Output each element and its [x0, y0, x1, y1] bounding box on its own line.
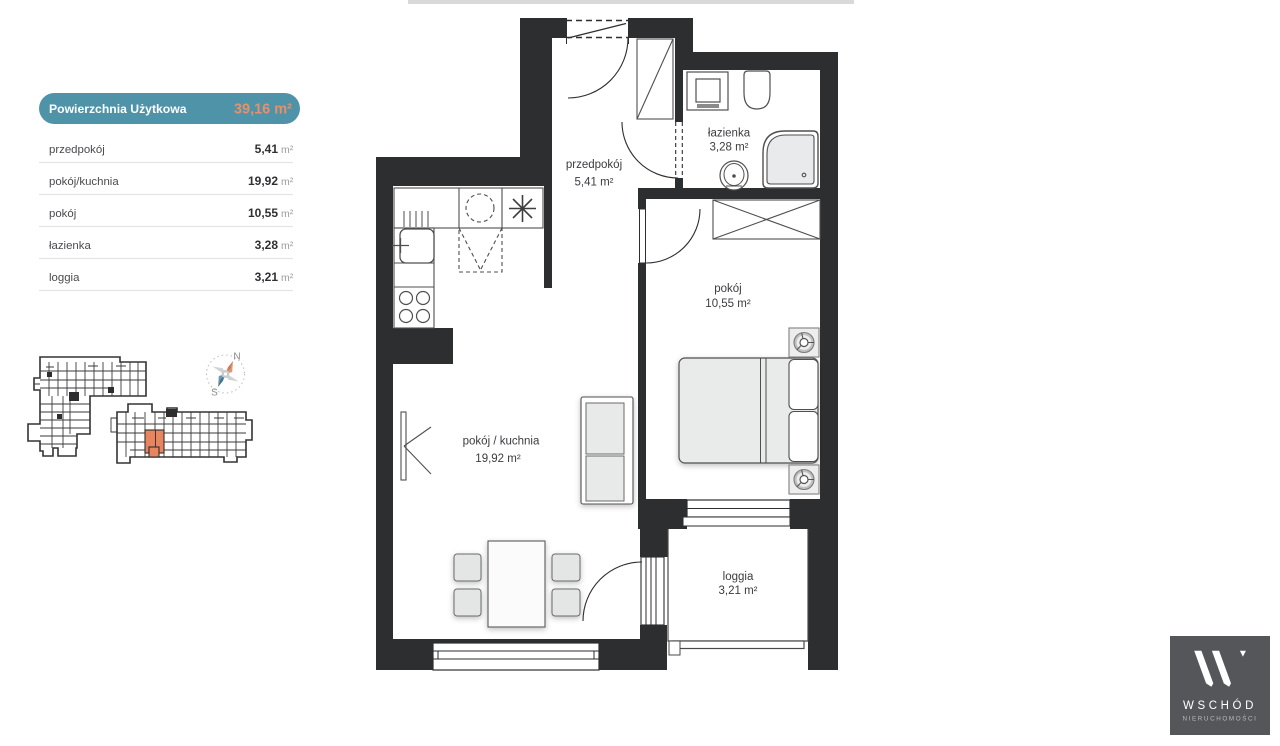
svg-text:m²: m² — [281, 272, 294, 284]
svg-text:loggia: loggia — [49, 272, 80, 284]
svg-text:przedpokój: przedpokój — [566, 159, 622, 171]
svg-text:m²: m² — [281, 208, 294, 220]
svg-text:19,92 m²: 19,92 m² — [475, 453, 521, 465]
svg-text:loggia: loggia — [723, 571, 754, 583]
svg-text:Powierzchnia Użytkowa: Powierzchnia Użytkowa — [49, 102, 187, 116]
svg-text:pokój / kuchnia: pokój / kuchnia — [463, 436, 540, 448]
svg-text:S: S — [211, 388, 218, 399]
svg-text:3,28 m²: 3,28 m² — [710, 142, 749, 154]
svg-text:pokój: pokój — [714, 283, 742, 295]
svg-text:WSCHÓD: WSCHÓD — [1183, 699, 1257, 712]
svg-text:pokój/kuchnia: pokój/kuchnia — [49, 176, 119, 188]
svg-text:m²: m² — [281, 240, 294, 252]
svg-text:przedpokój: przedpokój — [49, 144, 105, 156]
svg-text:39,16 m²: 39,16 m² — [234, 102, 292, 118]
svg-text:NIERUCHOMOŚCI: NIERUCHOMOŚCI — [1182, 714, 1257, 723]
svg-text:pokój: pokój — [49, 208, 76, 220]
svg-text:m²: m² — [281, 176, 294, 188]
svg-text:3,21 m²: 3,21 m² — [719, 585, 758, 597]
svg-text:łazienka: łazienka — [49, 240, 91, 252]
svg-text:10,55 m²: 10,55 m² — [705, 298, 751, 310]
svg-text:10,55: 10,55 — [248, 206, 278, 220]
svg-text:łazienka: łazienka — [708, 128, 751, 140]
svg-text:N: N — [233, 352, 240, 363]
svg-text:m²: m² — [281, 144, 294, 156]
svg-text:5,41 m²: 5,41 m² — [575, 177, 614, 189]
svg-text:3,21: 3,21 — [255, 270, 279, 284]
svg-text:3,28: 3,28 — [255, 238, 279, 252]
svg-text:5,41: 5,41 — [255, 142, 279, 156]
svg-text:19,92: 19,92 — [248, 174, 278, 188]
